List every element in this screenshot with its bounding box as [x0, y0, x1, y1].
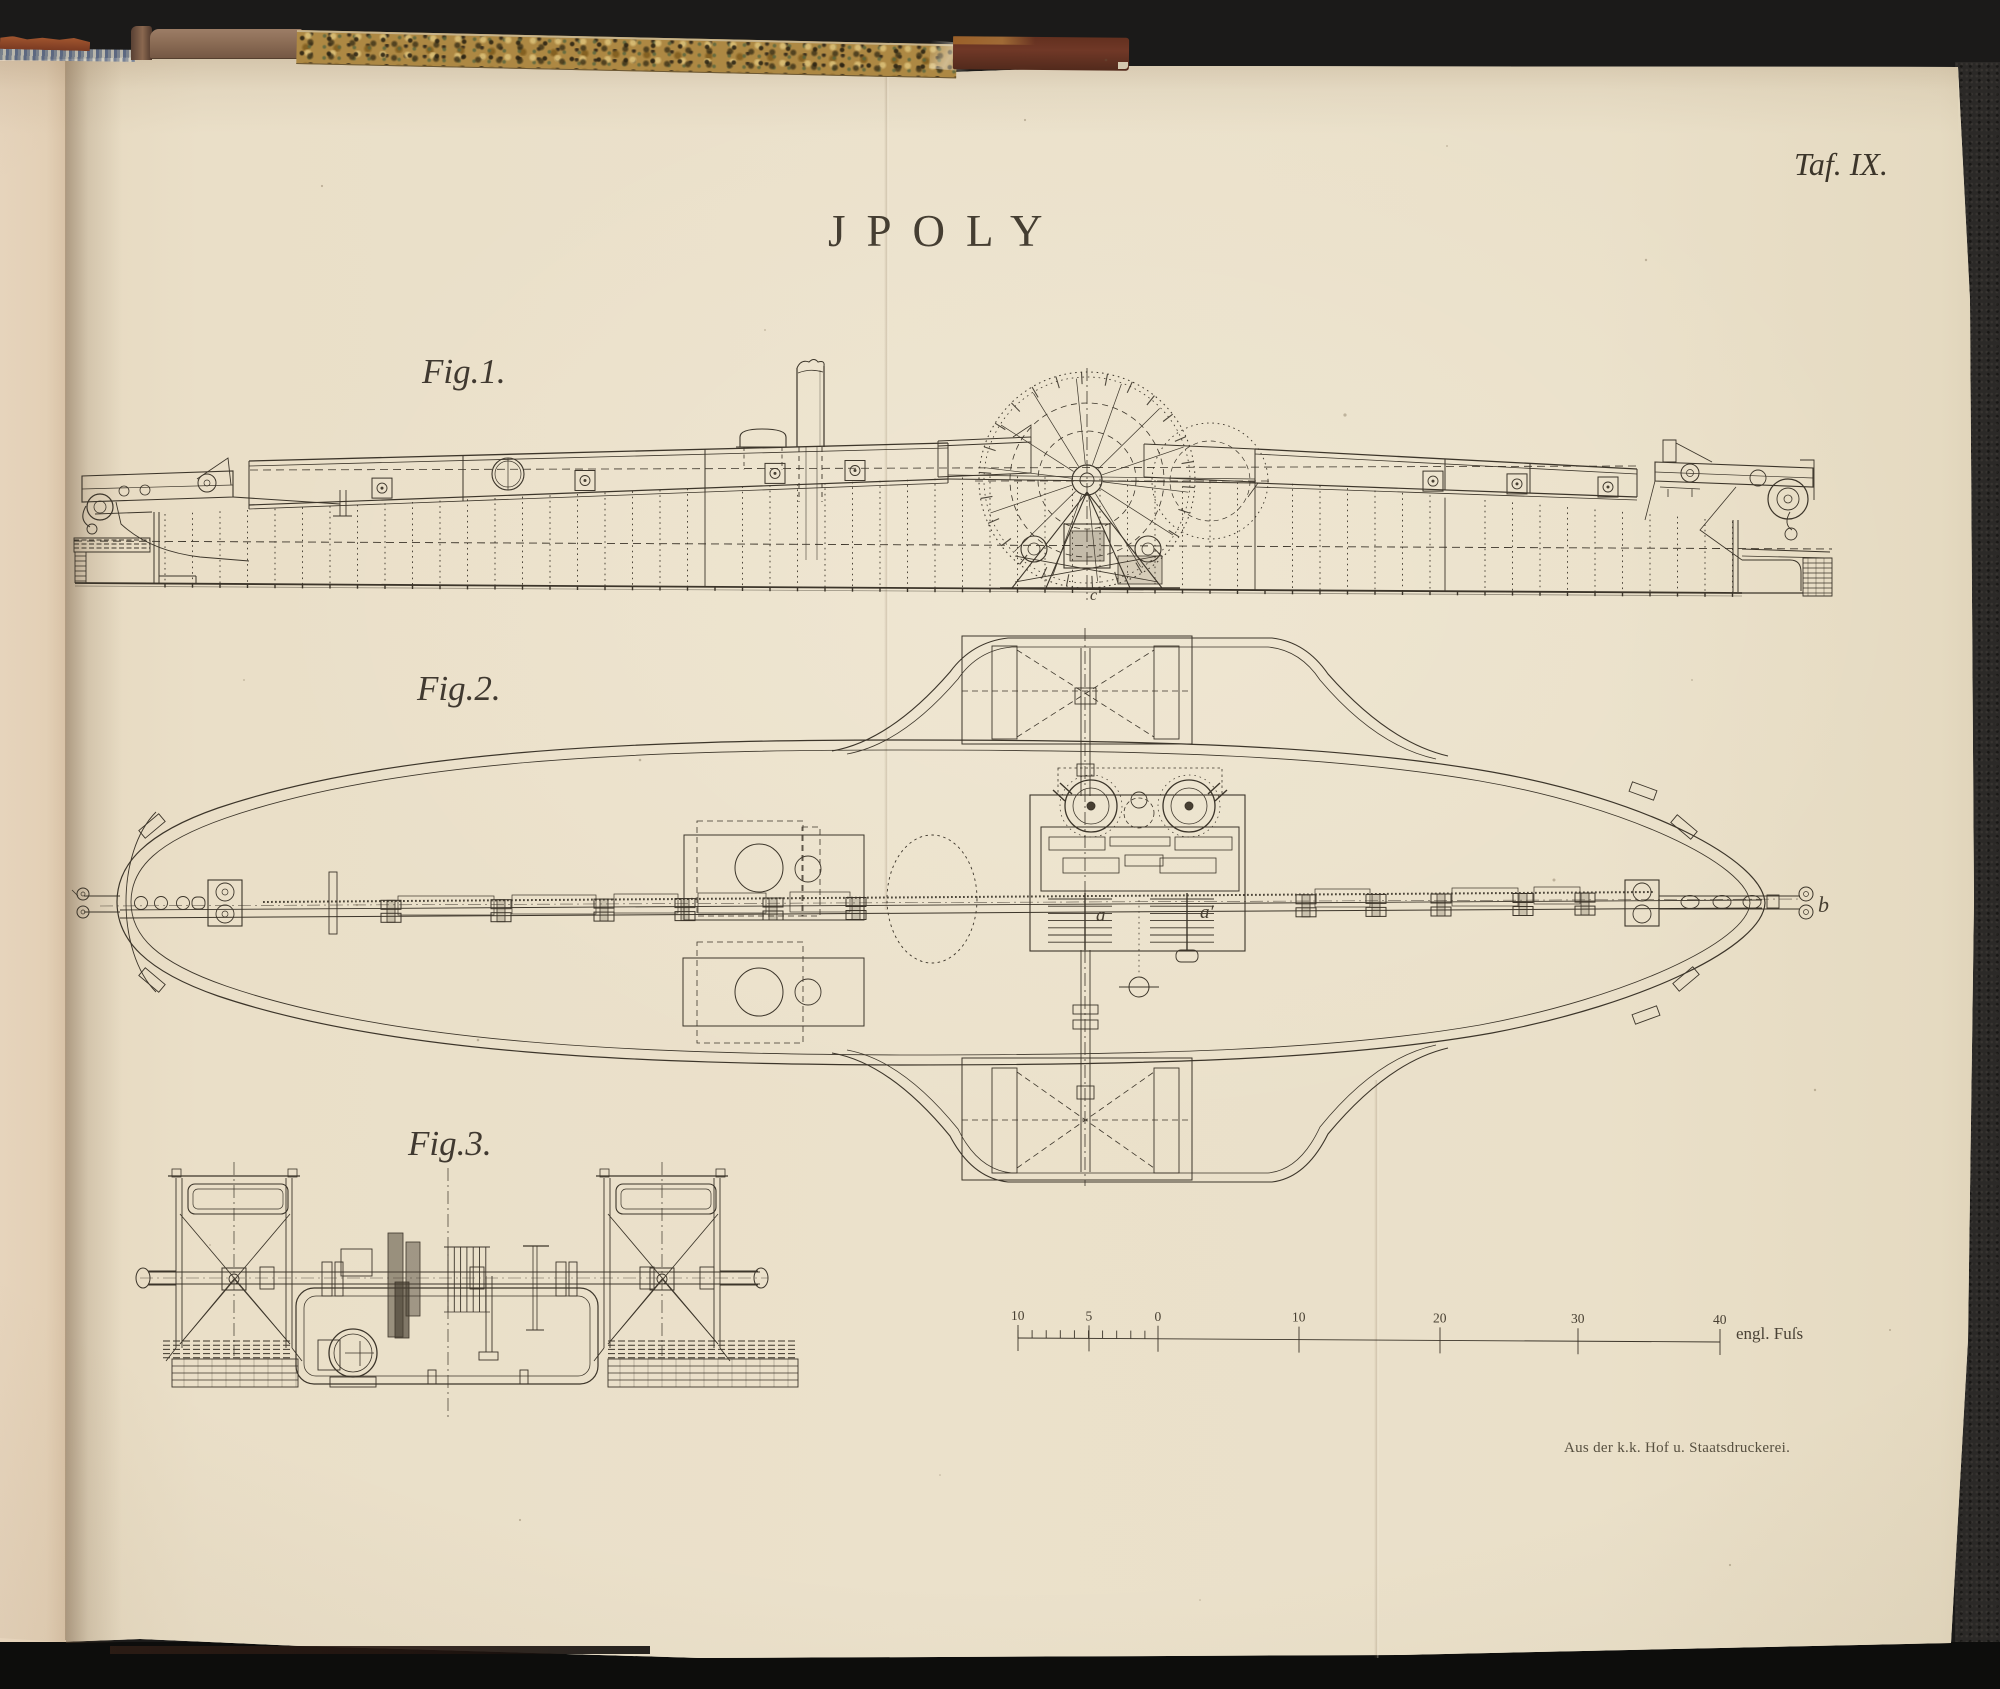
svg-text:5: 5	[1086, 1308, 1093, 1323]
svg-text:10: 10	[1011, 1308, 1025, 1323]
svg-text:10: 10	[1292, 1310, 1306, 1325]
svg-text:a′: a′	[1200, 902, 1215, 923]
svg-text:c: c	[1090, 587, 1097, 604]
svg-text:20: 20	[1433, 1310, 1447, 1325]
svg-text:0: 0	[1155, 1309, 1162, 1324]
svg-text:a: a	[1096, 905, 1106, 926]
svg-text:40: 40	[1713, 1312, 1727, 1327]
svg-text:30: 30	[1571, 1311, 1585, 1326]
svg-text:b: b	[1818, 892, 1829, 917]
